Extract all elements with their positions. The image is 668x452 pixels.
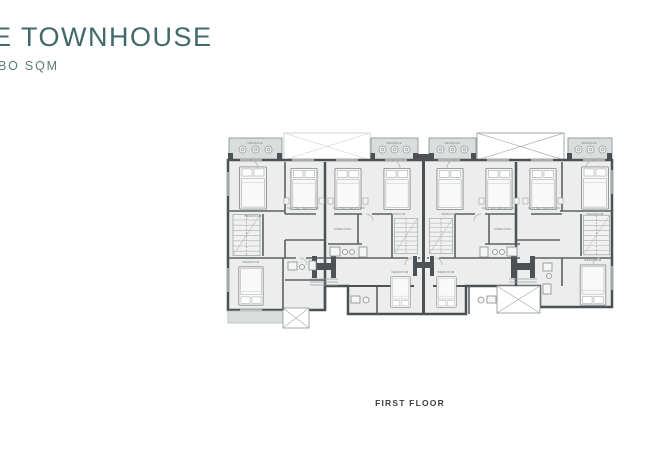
pergola-xbox-top-right bbox=[477, 133, 564, 160]
floor-plan-svg: TERRACE TERRACE TERRACE TERRACE MASTER B… bbox=[0, 0, 668, 452]
bed bbox=[240, 167, 267, 209]
room-label: BEDROOM bbox=[389, 212, 406, 216]
room-label: TERRACE bbox=[247, 141, 263, 145]
room-label: TERRACE bbox=[581, 141, 597, 145]
planter-icon bbox=[437, 146, 444, 153]
bed bbox=[239, 267, 263, 305]
room-label: TERRACE bbox=[386, 141, 402, 145]
stairs-unit-3 bbox=[429, 218, 452, 253]
xbox-bottom-right bbox=[497, 286, 540, 313]
planter-icon bbox=[461, 146, 468, 153]
planter-icon bbox=[403, 146, 410, 153]
room-label: DRESSING bbox=[494, 227, 512, 231]
room-label: MASTER BEDROOM bbox=[528, 206, 560, 210]
room-label: MASTER BEDROOM bbox=[482, 206, 514, 210]
bed bbox=[486, 168, 512, 209]
bed bbox=[580, 265, 606, 305]
planter-icon bbox=[239, 146, 246, 153]
room-label: BEDROOM bbox=[438, 270, 455, 274]
room-label: DRESSING bbox=[334, 227, 352, 231]
stairs-unit-1 bbox=[233, 215, 260, 256]
stairs-unit-2 bbox=[394, 218, 417, 253]
planter-icon bbox=[252, 146, 259, 153]
bed bbox=[335, 168, 361, 209]
room-label: BEDROOM bbox=[442, 212, 459, 216]
room-label: BEDROOM bbox=[587, 212, 604, 216]
room-label: BEDROOM bbox=[392, 270, 409, 274]
bed bbox=[384, 168, 410, 209]
bed bbox=[437, 168, 463, 209]
bed bbox=[291, 168, 317, 209]
planter-icon bbox=[391, 146, 398, 153]
planter-icon bbox=[587, 146, 594, 153]
planter-icon bbox=[379, 146, 386, 153]
planter-icon bbox=[599, 146, 606, 153]
bed bbox=[437, 277, 456, 308]
stairs-unit-4 bbox=[583, 215, 609, 255]
terrace-strip bbox=[228, 311, 284, 323]
bed bbox=[582, 167, 609, 209]
planter-icon bbox=[265, 146, 272, 153]
bed bbox=[530, 168, 556, 209]
floor-caption: FIRST FLOOR bbox=[310, 398, 510, 408]
planter-icon bbox=[575, 146, 582, 153]
room-label: BEDROOM bbox=[585, 258, 602, 262]
room-label: MASTER BEDROOM bbox=[333, 206, 365, 210]
room-label: MASTER BEDROOM bbox=[287, 206, 319, 210]
room-label: TERRACE bbox=[444, 141, 460, 145]
planter-icon bbox=[449, 146, 456, 153]
room-label: BEDROOM bbox=[245, 214, 262, 218]
presentation-page: E TOWNHOUSE BO SQM bbox=[0, 0, 668, 452]
bed bbox=[391, 277, 410, 308]
pergola-xbox-top-left bbox=[284, 133, 370, 160]
room-label: BEDROOM bbox=[243, 260, 260, 264]
xbox-bottom-left bbox=[283, 308, 309, 328]
